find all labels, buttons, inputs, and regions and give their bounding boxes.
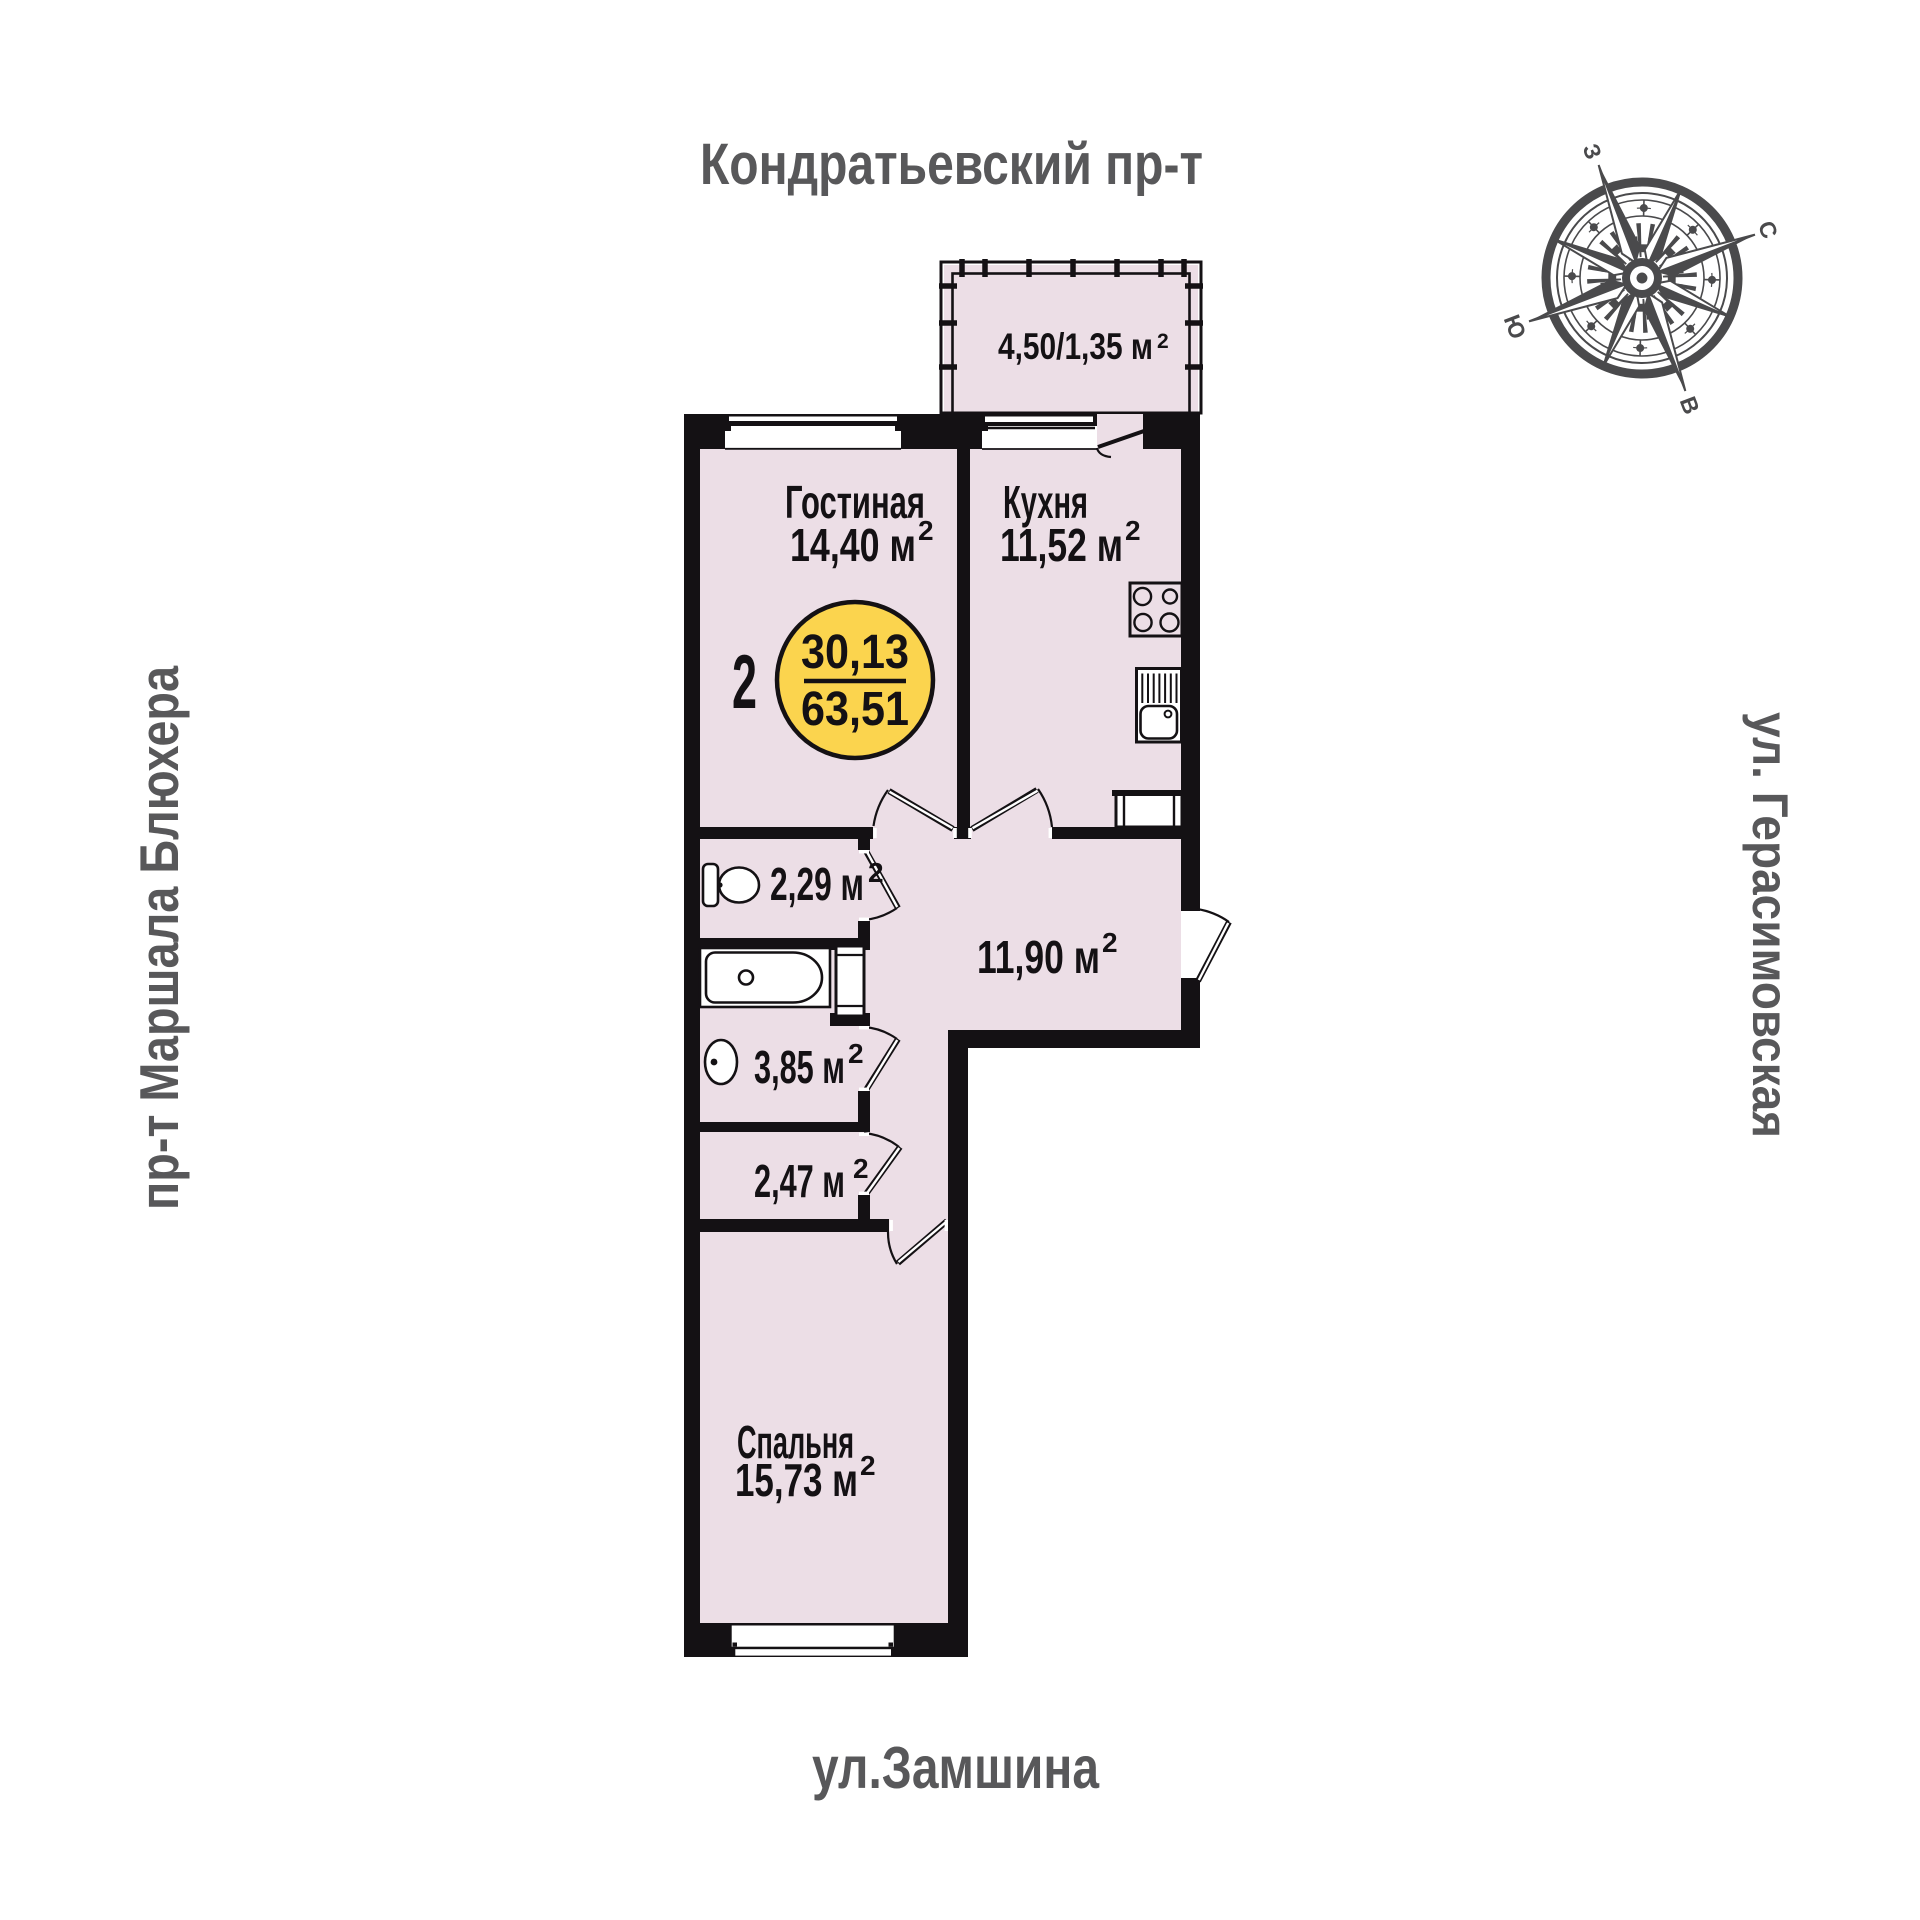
svg-text:2: 2: [860, 1450, 876, 1481]
svg-text:30,13: 30,13: [801, 626, 909, 679]
svg-text:14,40 м: 14,40 м: [790, 519, 916, 571]
svg-text:2: 2: [848, 1038, 864, 1069]
svg-text:63,51: 63,51: [801, 683, 909, 736]
svg-text:2: 2: [853, 1153, 869, 1184]
svg-text:2,47 м: 2,47 м: [754, 1155, 845, 1207]
svg-text:2,29 м: 2,29 м: [770, 858, 864, 910]
svg-text:2: 2: [868, 857, 884, 888]
svg-text:11,52 м: 11,52 м: [1000, 519, 1123, 571]
svg-text:2: 2: [1157, 330, 1169, 353]
svg-text:2: 2: [732, 640, 757, 725]
svg-text:11,90 м: 11,90 м: [977, 931, 1100, 983]
svg-text:3,85 м: 3,85 м: [754, 1041, 845, 1093]
svg-text:2: 2: [1102, 927, 1118, 958]
svg-text:Кондратьевский пр-т: Кондратьевский пр-т: [700, 132, 1203, 197]
svg-text:ул.Замшина: ул.Замшина: [812, 1735, 1100, 1801]
svg-text:пр-т Маршала Блюхера: пр-т Маршала Блюхера: [128, 666, 190, 1210]
svg-text:2: 2: [918, 515, 934, 546]
svg-text:2: 2: [1125, 515, 1141, 546]
svg-text:4,50/1,35 м: 4,50/1,35 м: [998, 326, 1153, 367]
svg-text:ул. Герасимовская: ул. Герасимовская: [1742, 712, 1798, 1138]
svg-text:15,73 м: 15,73 м: [735, 1454, 858, 1506]
